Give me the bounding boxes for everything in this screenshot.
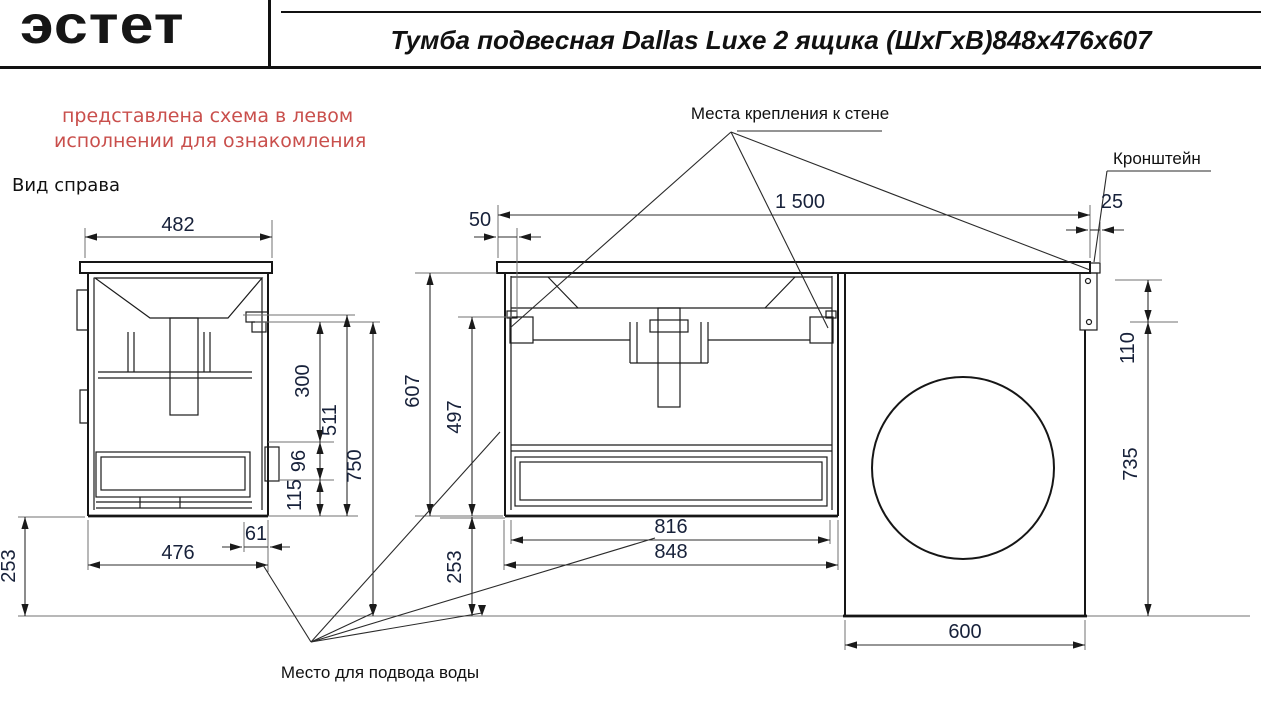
dim-side-top-width: 482: [161, 214, 194, 236]
dim-front-mount-offset: 50: [469, 209, 491, 231]
dim-niche-gap: 110: [1117, 332, 1139, 364]
dim-side-floor-gap: 253: [0, 549, 20, 582]
bracket-leader: [1094, 171, 1211, 262]
front-view-drawing: [497, 262, 1090, 516]
side-view-drawing: [77, 262, 279, 516]
water-supply-label: Место для подвода воды: [281, 663, 479, 682]
dim-side-lower: 115: [284, 479, 306, 511]
annotation-texts: представлена схема в левом исполнении дл…: [12, 104, 1201, 682]
dim-front-top-width: 1 500: [775, 191, 825, 213]
dim-front-width: 848: [654, 541, 687, 563]
drawing-page: эстет Тумба подвесная Dallas Luxe 2 ящик…: [0, 0, 1261, 702]
dim-side-upper: 300: [292, 364, 314, 397]
dim-front-floor-gap: 253: [444, 550, 466, 583]
dim-front-inner-height: 497: [444, 400, 466, 433]
dim-side-bottom-width: 476: [161, 542, 194, 564]
wall-mount-leader: [510, 131, 1090, 328]
dim-niche-width: 600: [948, 621, 981, 643]
dim-side-total: 750: [344, 449, 366, 482]
technical-drawing: 482 61 476 253 300 96 115 511 750 50 1 5…: [0, 0, 1261, 702]
dim-side-handle: 96: [288, 450, 310, 472]
dim-side-front-offset: 61: [245, 523, 267, 545]
washing-machine-niche: [845, 262, 1100, 616]
wall-mount-label: Места крепления к стене: [691, 104, 889, 123]
water-supply-leader: [263, 432, 655, 642]
side-view-title: Вид справа: [12, 175, 120, 196]
dim-front-inner-width: 816: [654, 516, 687, 538]
bracket-label: Кронштейн: [1113, 149, 1201, 168]
dim-front-height: 607: [402, 374, 424, 407]
disclaimer-note-line2: исполнении для ознакомления: [54, 130, 366, 152]
dimension-lines: [25, 215, 1148, 645]
dim-niche-height: 735: [1120, 447, 1142, 480]
washing-machine-door: [872, 377, 1054, 559]
wall-bracket: [1080, 263, 1100, 330]
extension-lines: [18, 205, 1178, 650]
dimension-texts: 482 61 476 253 300 96 115 511 750 50 1 5…: [0, 191, 1142, 643]
disclaimer-note-line1: представлена схема в левом: [62, 105, 353, 127]
dim-side-mid: 511: [319, 404, 341, 436]
dim-bracket-offset: 25: [1101, 191, 1123, 213]
